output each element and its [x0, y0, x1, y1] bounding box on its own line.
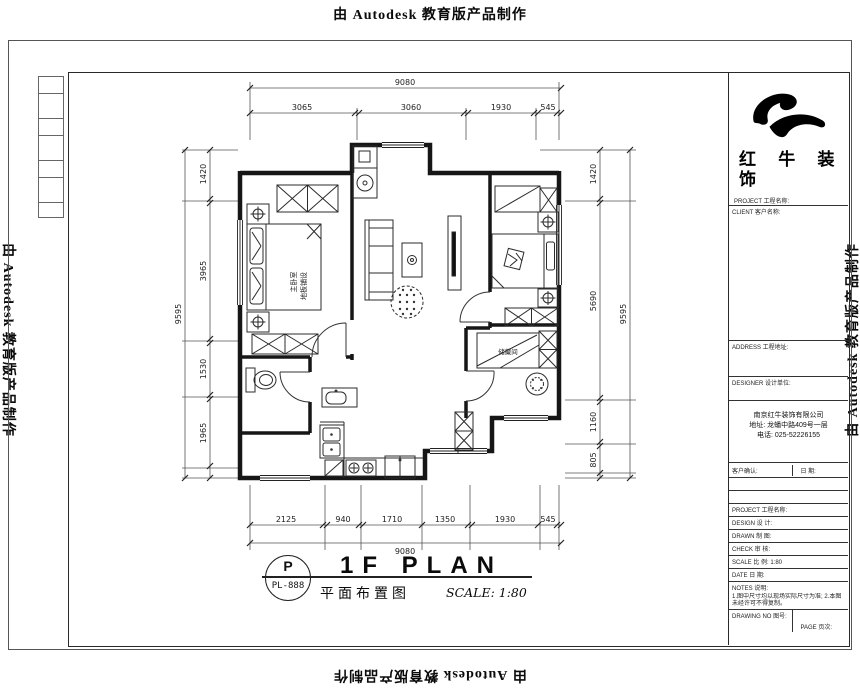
tb-notes-cell: NOTES 说明: 1.图中尺寸均以现场实际尺寸为准; 2.本图未经许可不得复制… [729, 581, 848, 609]
tb-field-label: CHECK 审 核: [729, 543, 848, 554]
tb-field-row: DRAWN 制 图: [729, 529, 848, 542]
master-closet [277, 185, 338, 212]
label-storage: 储藏间 [498, 347, 518, 356]
storage-cabinet [539, 331, 557, 368]
tb-client-label: CLIENT 客户名称: [729, 206, 848, 217]
plan-scale: SCALE: 1:80 [446, 585, 527, 600]
kitchen-counter [320, 422, 423, 478]
dim-bottom-seg: 1350 [435, 515, 455, 524]
tb-notes-title: NOTES 说明: [729, 582, 848, 593]
tb-field-row: CHECK 审 核: [729, 542, 848, 555]
door-storage [466, 371, 494, 401]
tv-cabinet [448, 216, 461, 290]
nightstand-lamp [538, 289, 558, 307]
door-bedroom2 [460, 292, 490, 322]
utility-cabinet [353, 146, 377, 168]
stamp-letter: P [266, 556, 310, 576]
vanity-basin [322, 388, 357, 407]
tb-confirm-label: 客户确认: [729, 465, 793, 476]
dim-left-seg: 3965 [199, 261, 208, 281]
dim-right-seg: 5690 [589, 291, 598, 311]
redbull-logo-icon [743, 86, 835, 148]
kitchen-sink [320, 425, 344, 458]
tb-drawing-no-label: DRAWING NO 图号: [729, 610, 793, 632]
dim-right-seg: 1420 [589, 164, 598, 184]
dim-top-seg: 3060 [401, 103, 421, 112]
tb-empty-strip [729, 631, 848, 645]
tb-field-label: DRAWN 制 图: [729, 530, 848, 541]
title-block: 红 牛 装 饰 PROJECT 工程名称: CLIENT 客户名称: ADDRE… [728, 72, 848, 645]
fridge [385, 456, 415, 478]
brand-name-line2: 饰 [739, 170, 765, 190]
shoe-cabinet [455, 412, 473, 450]
master-bed [247, 224, 321, 310]
margin-box-column [38, 76, 64, 218]
label-master-bedroom-finish: 地板铺设 [299, 272, 308, 300]
dim-top-overall: 9080 [395, 78, 415, 87]
tb-project-cell: CLIENT 客户名称: [729, 205, 848, 340]
brand-name-line1: 红 牛 装 [739, 150, 844, 170]
watermark-top: 由 Autodesk 教育版产品制作 [0, 4, 860, 24]
floor-plan: 9080 3065 3060 1930 545 2125 940 1710 13… [160, 70, 660, 570]
dim-right-overall: 9595 [619, 304, 628, 324]
plan-subtitle: 平面布置图 [320, 583, 410, 603]
margin-box [38, 76, 64, 94]
rug [391, 286, 423, 318]
dim-left-seg: 1530 [199, 359, 208, 379]
margin-box [38, 177, 64, 203]
washing-machine [353, 168, 377, 198]
door-bathroom [280, 372, 310, 402]
tb-designer-cell: DESIGNER 设计单位: [729, 376, 848, 400]
tb-empty-row [729, 490, 848, 503]
dim-bottom-seg: 2125 [276, 515, 296, 524]
tb-designer-label: DESIGNER 设计单位: [729, 377, 848, 388]
tb-field-row: DATE 日 期: [729, 568, 848, 581]
nightstand-lamp [247, 312, 269, 332]
tb-confirm-row: 客户确认: 日 期: [729, 462, 848, 477]
tb-field-row: DESIGN 设 计: [729, 516, 848, 529]
dim-left-seg: 1420 [199, 164, 208, 184]
storage-washer [526, 373, 548, 395]
sofa [365, 220, 393, 300]
side-table [402, 243, 422, 277]
stamp-code: PL-888 [266, 580, 310, 592]
watermark-bottom: 由 Autodesk 教育版产品制作 [0, 666, 860, 686]
dim-right-seg: 1160 [589, 412, 598, 432]
toilet [246, 368, 276, 392]
master-wardrobe [252, 334, 318, 354]
margin-box [38, 202, 64, 218]
tb-address-cell: ADDRESS 工程地址: [729, 340, 848, 376]
margin-box [38, 93, 64, 119]
bedroom2-bed [492, 234, 558, 288]
dim-top-seg: 545 [540, 103, 555, 112]
company-name: 南京红牛装饰有限公司 [729, 411, 848, 421]
dim-left-overall: 9595 [174, 304, 183, 324]
margin-box [38, 160, 64, 178]
tb-field-row: PROJECT 工程名称: [729, 503, 848, 516]
tb-address-label: ADDRESS 工程地址: [729, 341, 848, 352]
furniture [246, 146, 558, 478]
company-address: 地址: 龙蟠中路409号一层 [729, 421, 848, 431]
company-phone: 电话: 025-52226155 [729, 431, 848, 441]
bedroom2-closet [495, 186, 557, 212]
margin-box [38, 118, 64, 136]
tb-field-row: SCALE 比 例: 1:80 [729, 555, 848, 568]
tb-empty-row [729, 477, 848, 490]
tb-field-label: DESIGN 设 计: [729, 517, 848, 528]
tb-bottom-row: DRAWING NO 图号: PAGE 页次: [729, 609, 848, 631]
tb-field-label: SCALE 比 例: 1:80 [729, 556, 848, 567]
plan-title: 1F PLAN [340, 552, 503, 580]
dim-bottom-seg: 1930 [495, 515, 515, 524]
stove [346, 460, 376, 476]
tb-company-cell: 南京红牛装饰有限公司 地址: 龙蟠中路409号一层 电话: 025-522261… [729, 400, 848, 462]
tb-confirm-date-label: 日 期: [797, 465, 818, 476]
drawing-sheet: 由 Autodesk 教育版产品制作 由 Autodesk 教育版产品制作 由 … [0, 0, 860, 688]
dim-left-seg: 1965 [199, 423, 208, 443]
corner-cabinet [325, 460, 343, 476]
nightstand-lamp [247, 204, 269, 224]
dim-top-seg: 1930 [491, 103, 511, 112]
tb-notes-body: 1.图中尺寸均以现场实际尺寸为准; 2.本图未经许可不得复制。 [729, 593, 848, 609]
dim-bottom-seg: 940 [335, 515, 350, 524]
door-master-bedroom [312, 323, 346, 357]
dim-bottom-seg: 1710 [382, 515, 402, 524]
dim-bottom-seg: 545 [540, 515, 555, 524]
drawing-number-stamp: P PL-888 [265, 555, 311, 601]
label-master-bedroom: 主卧室 [289, 272, 298, 293]
tb-field-label: DATE 日 期: [729, 569, 848, 580]
tb-field-label: PROJECT 工程名称: [729, 504, 848, 515]
dim-top-seg: 3065 [292, 103, 312, 112]
margin-box [38, 135, 64, 161]
doors [280, 292, 494, 402]
dim-right-seg: 805 [589, 452, 598, 467]
